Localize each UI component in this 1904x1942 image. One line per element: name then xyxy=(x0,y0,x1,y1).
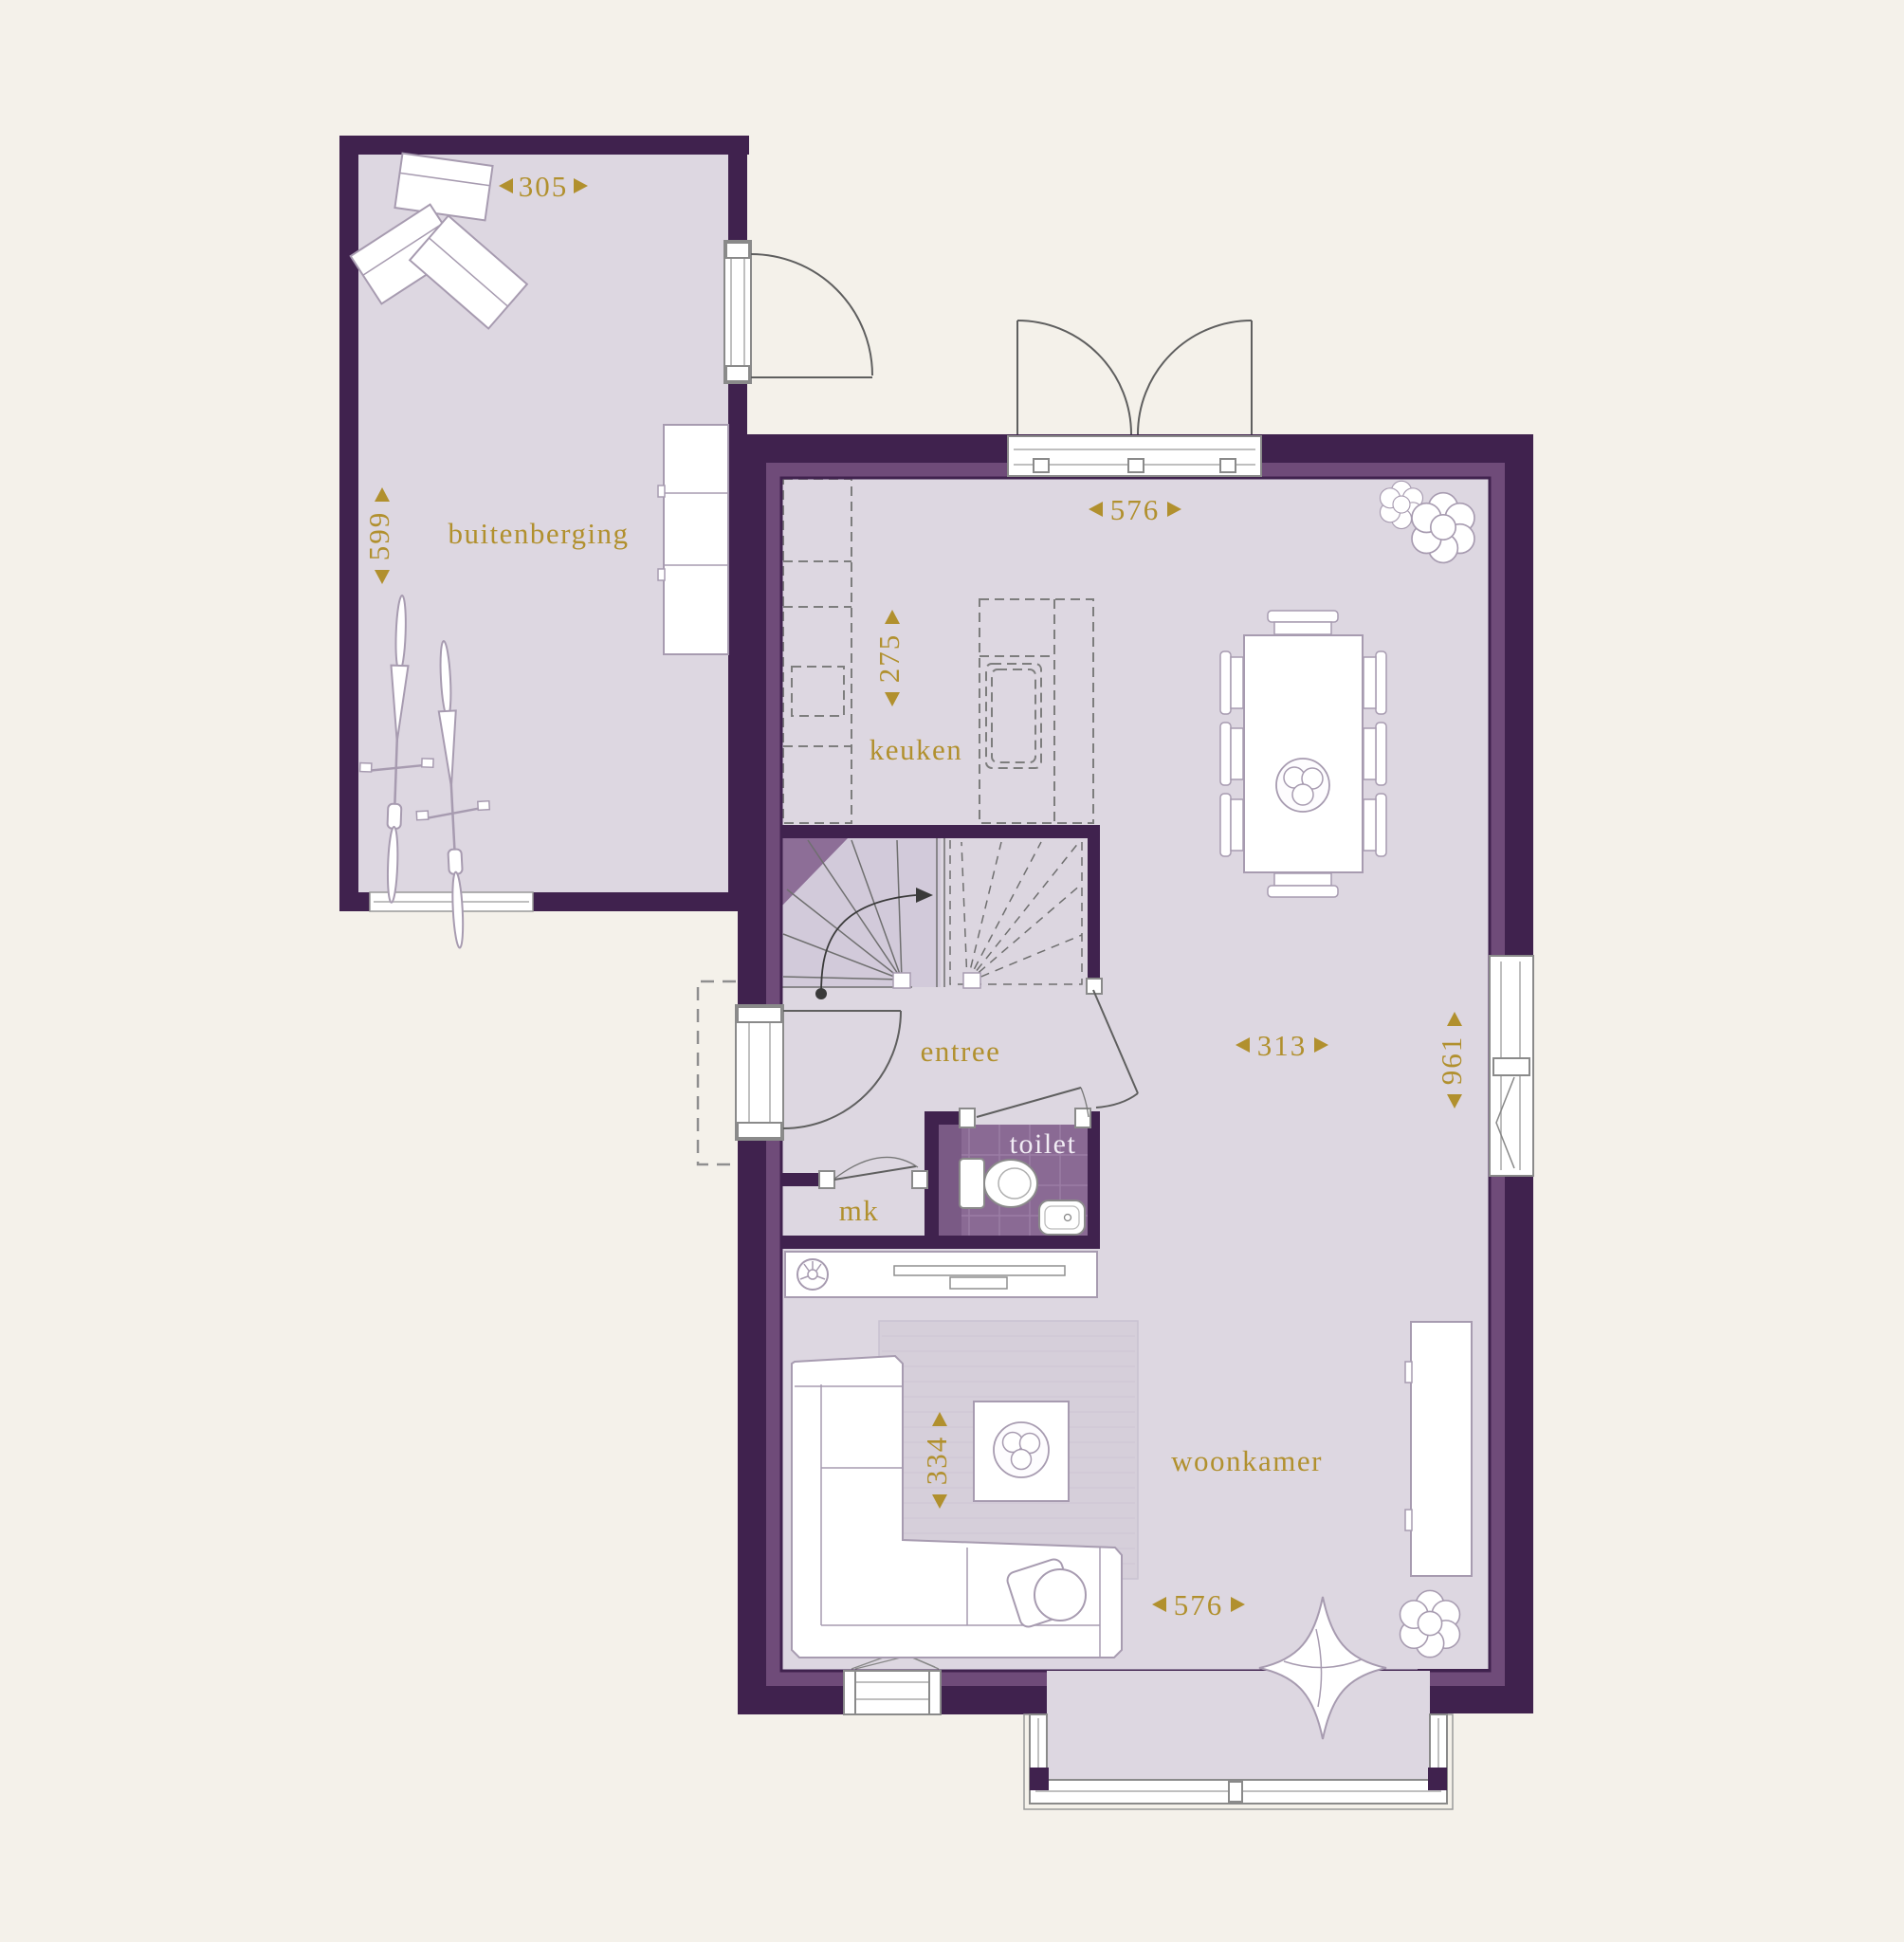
dim-text: 576 xyxy=(1110,493,1161,526)
label-buitenberging: buitenberging xyxy=(448,517,629,550)
dim-text: 576 xyxy=(1174,1588,1224,1621)
dining-set xyxy=(1220,611,1386,897)
floor-plan: buitenberging keuken entree toilet mk wo… xyxy=(0,0,1904,1942)
sofa-throw xyxy=(1034,1569,1086,1621)
right-window xyxy=(1490,956,1533,1176)
dining-table xyxy=(1244,635,1363,872)
dim-text: 313 xyxy=(1257,1029,1308,1062)
label-keuken: keuken xyxy=(870,733,963,766)
dim-text: 305 xyxy=(519,170,569,203)
tv xyxy=(894,1266,1065,1275)
tv-stand xyxy=(950,1277,1007,1289)
stair-newel-post xyxy=(893,973,910,988)
dim-text: 599 xyxy=(362,511,395,561)
toilet-fixture xyxy=(960,1159,1037,1208)
label-woonkamer: woonkamer xyxy=(1171,1444,1323,1477)
floor-plan-page: buitenberging keuken entree toilet mk wo… xyxy=(0,0,1904,1942)
label-entree: entree xyxy=(921,1035,1001,1068)
dim-text: 961 xyxy=(1435,1035,1468,1086)
fruit-platter xyxy=(1276,759,1329,812)
toilet-cistern-wall xyxy=(939,1125,961,1236)
speaker-icon xyxy=(797,1259,828,1290)
bay-window xyxy=(1024,1671,1453,1809)
coffee-table xyxy=(974,1402,1069,1501)
bay-floor xyxy=(1047,1671,1430,1780)
stair-newel-post-2 xyxy=(963,973,980,988)
staircase xyxy=(781,838,1088,999)
dim-text: 334 xyxy=(920,1436,953,1486)
berging-cabinet xyxy=(658,425,728,654)
dim-text: 275 xyxy=(872,633,906,684)
label-toilet: toilet xyxy=(1010,1128,1077,1160)
sideboard xyxy=(785,1252,1097,1297)
toilet-sink xyxy=(1039,1200,1085,1235)
wall-cabinet xyxy=(1405,1322,1472,1576)
label-mk: mk xyxy=(839,1194,880,1227)
